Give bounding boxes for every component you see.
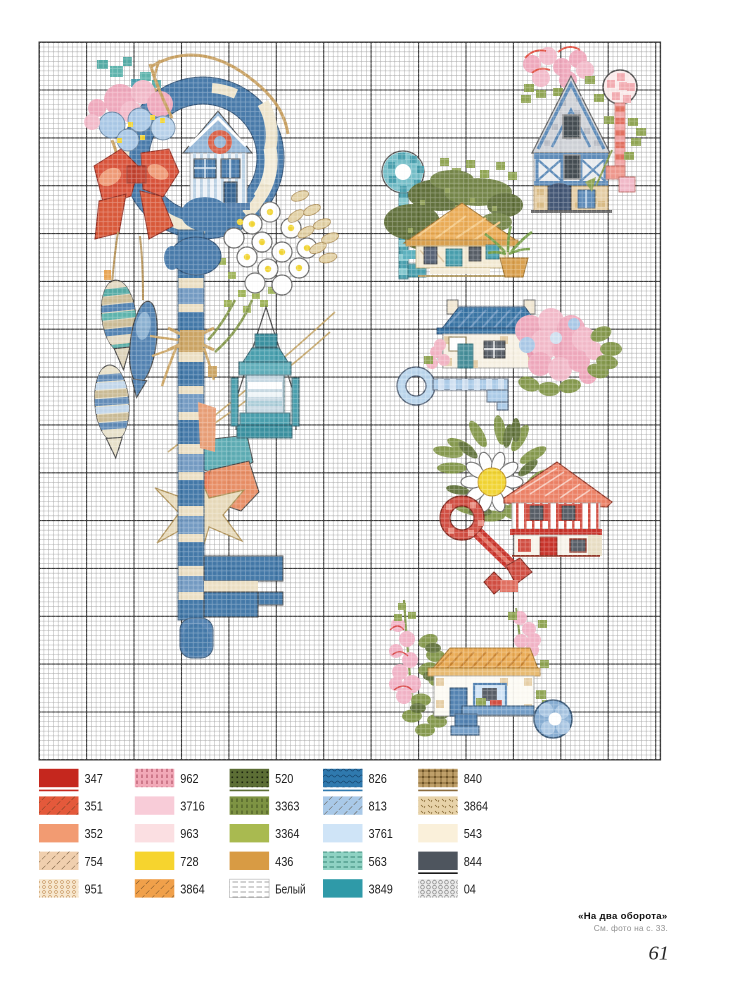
svg-text:826: 826 <box>369 772 387 786</box>
svg-text:962: 962 <box>180 772 198 786</box>
svg-text:3849: 3849 <box>369 882 393 896</box>
svg-text:844: 844 <box>464 855 482 869</box>
svg-text:Белый: Белый <box>275 882 306 896</box>
svg-text:520: 520 <box>275 772 293 786</box>
svg-text:840: 840 <box>464 772 482 786</box>
svg-text:3864: 3864 <box>464 800 488 814</box>
svg-text:813: 813 <box>369 800 387 814</box>
svg-text:951: 951 <box>85 882 103 896</box>
svg-text:См. фото на с. 33.: См. фото на с. 33. <box>594 923 668 933</box>
svg-text:543: 543 <box>464 827 482 841</box>
svg-text:61: 61 <box>649 943 670 965</box>
svg-text:04: 04 <box>464 882 476 896</box>
svg-text:3363: 3363 <box>275 800 299 814</box>
svg-text:728: 728 <box>180 855 198 869</box>
svg-text:351: 351 <box>85 800 103 814</box>
svg-text:352: 352 <box>85 827 103 841</box>
svg-text:3761: 3761 <box>369 827 393 841</box>
svg-text:3364: 3364 <box>275 827 299 841</box>
svg-text:347: 347 <box>85 772 103 786</box>
svg-text:754: 754 <box>85 855 103 869</box>
svg-text:436: 436 <box>275 855 293 869</box>
svg-text:963: 963 <box>180 827 198 841</box>
svg-text:3716: 3716 <box>180 800 204 814</box>
svg-text:3864: 3864 <box>180 882 204 896</box>
svg-text:«На два оборота»: «На два оборота» <box>578 911 667 922</box>
svg-text:563: 563 <box>369 855 387 869</box>
